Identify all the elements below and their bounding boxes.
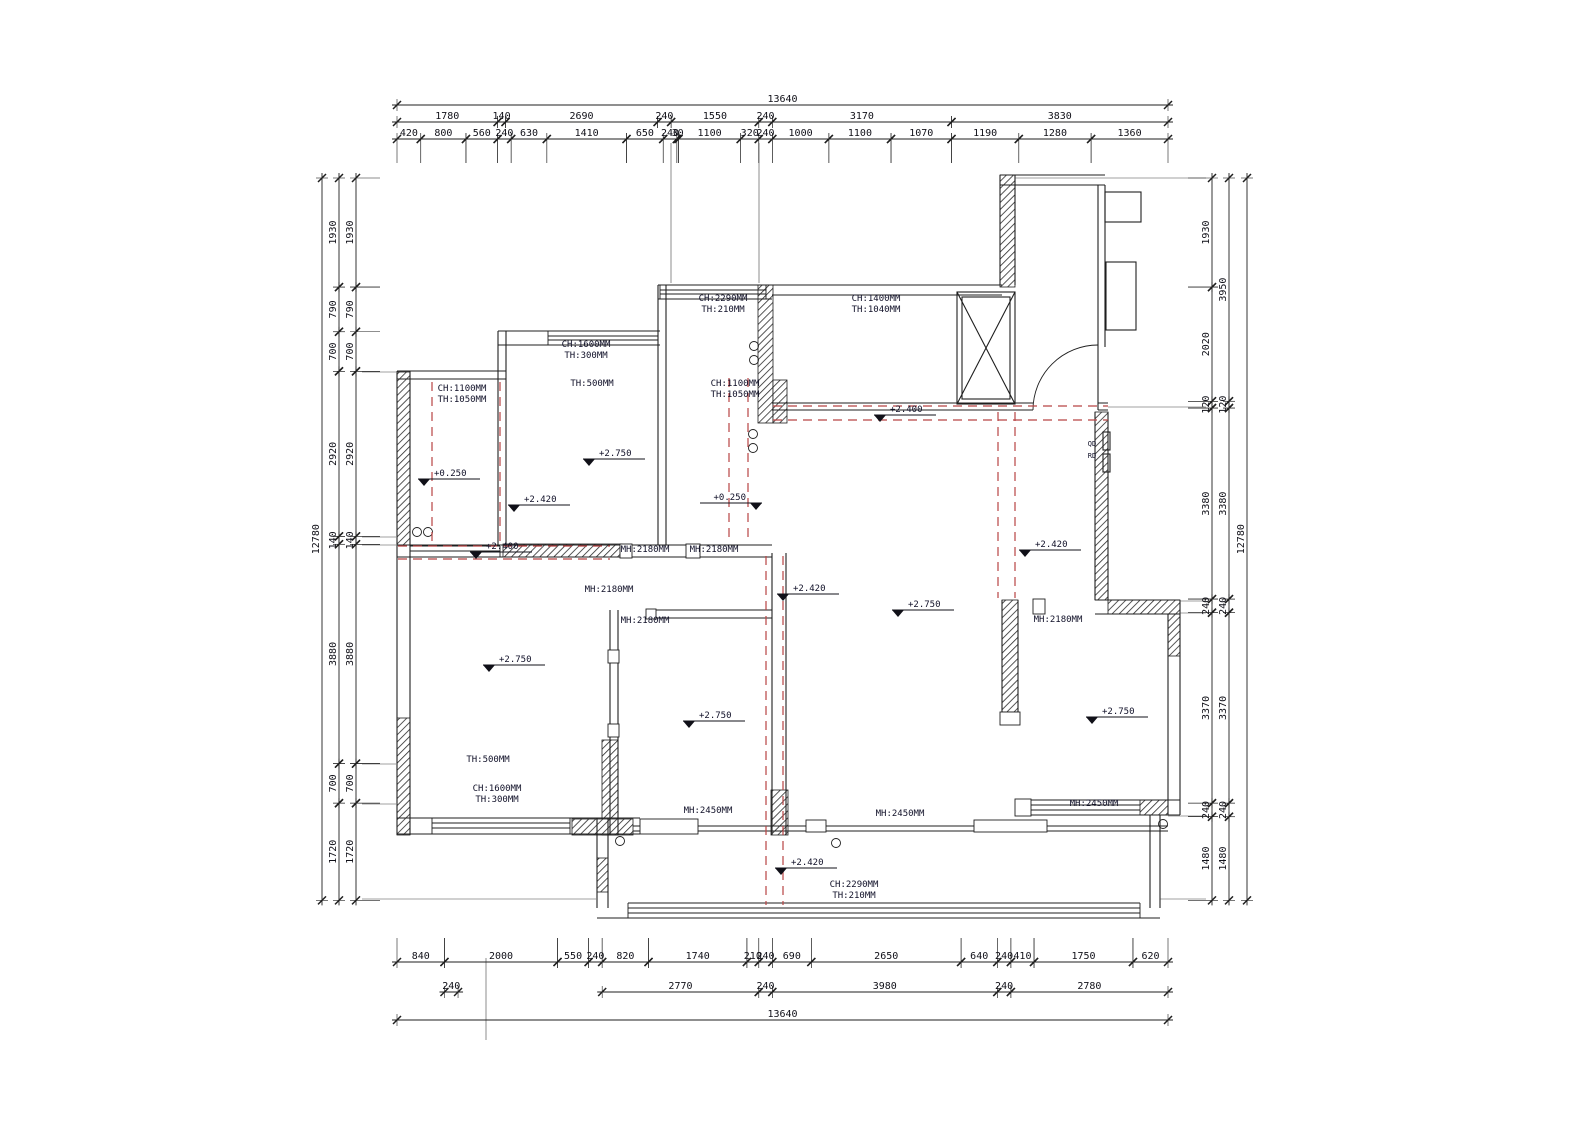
dim-label: 1720 bbox=[328, 840, 339, 864]
room-label: MH:2180MM bbox=[690, 545, 739, 555]
elevation-value: +2.420 bbox=[1035, 540, 1068, 550]
door-jambs bbox=[608, 544, 1047, 834]
room-label-text: CH:1100MM bbox=[711, 379, 760, 389]
elevation-value: +0.250 bbox=[434, 469, 467, 479]
room-label-text: CH:2290MM bbox=[699, 294, 748, 304]
elevation-value: +2.750 bbox=[1102, 707, 1135, 717]
dim-label: 1930 bbox=[328, 220, 339, 244]
dim-label: 700 bbox=[345, 774, 356, 792]
dim-label: 2650 bbox=[874, 951, 898, 962]
elevation-value: +2.420 bbox=[793, 584, 826, 594]
room-label-text: CH:1600MM bbox=[473, 784, 522, 794]
dim-top-row2: 4208005602406301410650240301100320240100… bbox=[392, 128, 1173, 163]
dimension-chains: 1364017801402690240155024031703830420800… bbox=[311, 94, 1253, 1026]
room-label: MH:2180MM bbox=[621, 545, 670, 555]
dim-bottom-row2: 13640 bbox=[392, 1009, 1173, 1026]
dim-label: 1930 bbox=[1201, 220, 1212, 244]
dim-left-col2: 1930790700292014038807001720 bbox=[345, 173, 380, 905]
dim-label: 240 bbox=[442, 981, 460, 992]
room-label: CH:1600MMTH:300MM bbox=[562, 340, 611, 361]
dim-label: 240 bbox=[757, 981, 775, 992]
elevator-shaft bbox=[957, 292, 1015, 404]
dim-label: 1100 bbox=[848, 128, 872, 139]
dim-top-row1: 17801402690240155024031703830 bbox=[392, 111, 1173, 128]
room-label-text: TH:1040MM bbox=[852, 305, 901, 315]
elevation-value: +2.750 bbox=[908, 600, 941, 610]
elevation-value: +2.750 bbox=[499, 655, 532, 665]
room-label-text: TH:300MM bbox=[475, 795, 519, 805]
dim-label: 1550 bbox=[703, 111, 727, 122]
dim-label: 3380 bbox=[1201, 492, 1212, 516]
dim-label: 3370 bbox=[1201, 696, 1212, 720]
dim-label: 120 bbox=[1218, 396, 1229, 414]
room-label: TH:500MM bbox=[466, 755, 510, 765]
room-label-text: TH:1050MM bbox=[711, 390, 760, 400]
dim-label: 1410 bbox=[575, 128, 599, 139]
dim-label: 1360 bbox=[1118, 128, 1142, 139]
room-label-text: CH:2290MM bbox=[830, 880, 879, 890]
dim-label: 1780 bbox=[435, 111, 459, 122]
dim-label: 410 bbox=[1013, 951, 1031, 962]
dim-label: 3830 bbox=[1048, 111, 1072, 122]
dim-label: 120 bbox=[1201, 396, 1212, 414]
dim-label: 650 bbox=[636, 128, 654, 139]
dim-label: 240 bbox=[1201, 597, 1212, 615]
dim-label: 630 bbox=[520, 128, 538, 139]
dim-right-col0: 19302020120338024033702401480 bbox=[1188, 173, 1218, 905]
dim-label: 2770 bbox=[668, 981, 692, 992]
elevation-value: +2.750 bbox=[599, 449, 632, 459]
elevation-marker: +0.250 bbox=[418, 469, 480, 486]
dim-label: 240 bbox=[1218, 597, 1229, 615]
dim-label: 240 bbox=[495, 128, 513, 139]
elevation-marker: +0.250 bbox=[700, 493, 762, 510]
dim-label: 700 bbox=[328, 774, 339, 792]
dim-label: 1070 bbox=[909, 128, 933, 139]
dim-label: 420 bbox=[400, 128, 418, 139]
dim-label: 820 bbox=[616, 951, 634, 962]
room-label-text: MH:2450MM bbox=[1070, 799, 1119, 809]
room-label: CH:2290MMTH:210MM bbox=[830, 880, 879, 901]
dim-label: 2690 bbox=[570, 111, 594, 122]
dim-label: 12780 bbox=[311, 524, 322, 554]
room-label: MH:2180MM bbox=[621, 616, 670, 626]
room-label: MH:2450MM bbox=[876, 809, 925, 819]
elevation-value: +2.400 bbox=[486, 542, 519, 552]
dim-label: 1750 bbox=[1071, 951, 1095, 962]
dim-label: 2000 bbox=[489, 951, 513, 962]
room-label-text: MH:2180MM bbox=[621, 616, 670, 626]
dim-label: 1930 bbox=[345, 220, 356, 244]
elevation-value: +2.400 bbox=[890, 405, 923, 415]
exterior-ledges bbox=[1105, 192, 1141, 330]
room-label-text: MH:2180MM bbox=[621, 545, 670, 555]
room-label-text: MH:2180MM bbox=[690, 545, 739, 555]
room-label: CH:2290MMTH:210MM bbox=[699, 294, 748, 315]
room-label: QD bbox=[1088, 440, 1096, 448]
dim-label: 240 bbox=[757, 111, 775, 122]
dim-label: 700 bbox=[345, 343, 356, 361]
room-label: MH:2450MM bbox=[1070, 799, 1119, 809]
room-label: MH:2180MM bbox=[585, 585, 634, 595]
dim-left-col1: 1930790700292014038807001720 bbox=[328, 173, 345, 905]
elevation-marker: +2.750 bbox=[1086, 707, 1148, 724]
dim-label: 3880 bbox=[345, 642, 356, 666]
dim-label: 1100 bbox=[698, 128, 722, 139]
room-label: CH:1400MMTH:1040MM bbox=[852, 294, 901, 315]
dim-label: 3980 bbox=[873, 981, 897, 992]
dim-label: 1480 bbox=[1201, 847, 1212, 871]
dim-label: 700 bbox=[328, 343, 339, 361]
dim-label: 240 bbox=[757, 951, 775, 962]
dim-right-col1: 3950120338024033702401480 bbox=[1218, 173, 1235, 905]
dim-label: 3170 bbox=[850, 111, 874, 122]
dim-left-col0: 12780 bbox=[311, 173, 328, 905]
dim-label: 840 bbox=[412, 951, 430, 962]
entry-door-arc bbox=[1033, 345, 1098, 410]
elevation-marker: +2.750 bbox=[583, 449, 645, 466]
room-label-text: MH:2180MM bbox=[585, 585, 634, 595]
room-label: CH:1600MMTH:300MM bbox=[473, 784, 522, 805]
dim-label: 2920 bbox=[328, 442, 339, 466]
room-label-text: TH:500MM bbox=[570, 379, 614, 389]
dim-label: 690 bbox=[783, 951, 801, 962]
dim-label: 640 bbox=[970, 951, 988, 962]
room-label: CH:1100MMTH:1050MM bbox=[438, 384, 487, 405]
elevation-marker: +2.750 bbox=[892, 600, 954, 617]
elevation-value: +2.420 bbox=[791, 858, 824, 868]
room-label-text: CH:1600MM bbox=[562, 340, 611, 350]
elevation-marker: +2.750 bbox=[683, 711, 745, 728]
dim-label: 2020 bbox=[1201, 332, 1212, 356]
room-label-text: TH:210MM bbox=[701, 305, 745, 315]
room-label: MH:2450MM bbox=[684, 806, 733, 816]
dim-label: 1480 bbox=[1218, 847, 1229, 871]
room-label: CH:1100MMTH:1050MM bbox=[711, 379, 760, 400]
room-label-text: TH:500MM bbox=[466, 755, 510, 765]
dim-label: 2780 bbox=[1077, 981, 1101, 992]
elevation-marker: +2.420 bbox=[775, 858, 837, 875]
elevation-value: +2.750 bbox=[699, 711, 732, 721]
dim-label: 12780 bbox=[1236, 524, 1247, 554]
dim-label: 240 bbox=[995, 951, 1013, 962]
dim-label: 240 bbox=[1201, 801, 1212, 819]
dim-label: 1720 bbox=[345, 840, 356, 864]
dim-label: 3950 bbox=[1218, 278, 1229, 302]
floor-plan: 1364017801402690240155024031703830420800… bbox=[0, 0, 1588, 1122]
room-label: TH:500MM bbox=[570, 379, 614, 389]
room-label-text: CH:1400MM bbox=[852, 294, 901, 304]
room-label-text: QD bbox=[1088, 440, 1096, 448]
dim-label: 560 bbox=[473, 128, 491, 139]
dim-label: 13640 bbox=[767, 94, 797, 105]
elevation-marker: +2.750 bbox=[483, 655, 545, 672]
dim-label: 620 bbox=[1141, 951, 1159, 962]
dim-label: 550 bbox=[564, 951, 582, 962]
dim-label: 240 bbox=[586, 951, 604, 962]
dim-label: 30 bbox=[672, 128, 684, 139]
dim-label: 800 bbox=[434, 128, 452, 139]
elevation-marker: +2.420 bbox=[1019, 540, 1081, 557]
dim-bottom-row0: 8402000550240820174021024069026506402404… bbox=[392, 938, 1173, 968]
dim-right-col2: 12780 bbox=[1236, 173, 1253, 905]
dim-label: 3380 bbox=[1218, 492, 1229, 516]
room-label-text: MH:2450MM bbox=[684, 806, 733, 816]
extension-lines bbox=[362, 143, 1206, 1040]
dim-label: 240 bbox=[655, 111, 673, 122]
elevation-value: +0.250 bbox=[713, 493, 746, 503]
room-label: RD bbox=[1088, 452, 1096, 460]
room-label: MH:2180MM bbox=[1034, 615, 1083, 625]
dim-label: 1000 bbox=[789, 128, 813, 139]
dim-label: 3880 bbox=[328, 642, 339, 666]
elevation-value: +2.420 bbox=[524, 495, 557, 505]
room-label-text: MH:2180MM bbox=[1034, 615, 1083, 625]
dim-label: 240 bbox=[995, 981, 1013, 992]
dim-label: 1280 bbox=[1043, 128, 1067, 139]
dim-label: 790 bbox=[328, 300, 339, 318]
dim-label: 1740 bbox=[686, 951, 710, 962]
room-label-text: CH:1100MM bbox=[438, 384, 487, 394]
dim-label: 240 bbox=[757, 128, 775, 139]
drawing-sheet: 1364017801402690240155024031703830420800… bbox=[0, 0, 1588, 1122]
dim-label: 3370 bbox=[1218, 696, 1229, 720]
room-label-text: RD bbox=[1088, 452, 1096, 460]
room-label-text: TH:210MM bbox=[832, 891, 876, 901]
dim-label: 2920 bbox=[345, 442, 356, 466]
dim-bottom-row1: 240277024039802402780 bbox=[439, 981, 1173, 998]
elevation-marker: +2.420 bbox=[508, 495, 570, 512]
room-label-text: MH:2450MM bbox=[876, 809, 925, 819]
dim-label: 13640 bbox=[767, 1009, 797, 1020]
dim-label: 240 bbox=[1218, 801, 1229, 819]
dim-label: 790 bbox=[345, 300, 356, 318]
room-label-text: TH:300MM bbox=[564, 351, 608, 361]
room-label-text: TH:1050MM bbox=[438, 395, 487, 405]
dim-top-row0: 13640 bbox=[392, 94, 1173, 111]
dim-label: 1190 bbox=[973, 128, 997, 139]
